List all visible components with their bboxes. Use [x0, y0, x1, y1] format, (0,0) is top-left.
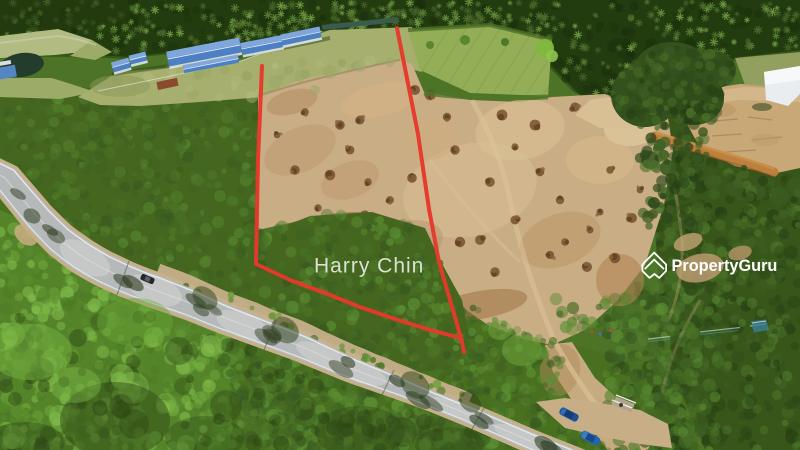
svg-text:PropertyGuru: PropertyGuru: [672, 257, 778, 275]
svg-text:Harry Chin: Harry Chin: [314, 255, 424, 278]
